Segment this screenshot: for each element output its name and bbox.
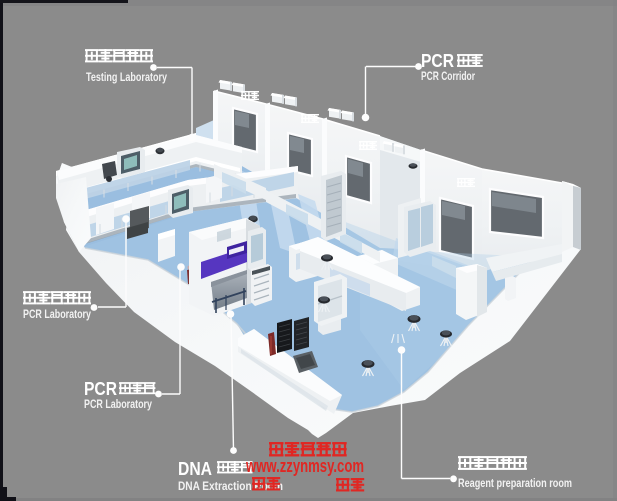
svg-text:DNA Extraction Room: DNA Extraction Room xyxy=(178,479,283,493)
svg-text:PCR Laboratory: PCR Laboratory xyxy=(23,307,91,321)
svg-text:DNA: DNA xyxy=(178,459,212,479)
svg-text:PCR: PCR xyxy=(421,51,454,71)
svg-text:www.zzynmsy.com: www.zzynmsy.com xyxy=(245,455,364,476)
svg-text:PCR Corridor: PCR Corridor xyxy=(421,69,475,83)
svg-text:PCR: PCR xyxy=(84,379,117,399)
svg-text:PCR Laboratory: PCR Laboratory xyxy=(84,397,152,411)
svg-text:Testing Laboratory: Testing Laboratory xyxy=(86,70,167,84)
svg-text:Reagent preparation room: Reagent preparation room xyxy=(458,476,572,490)
